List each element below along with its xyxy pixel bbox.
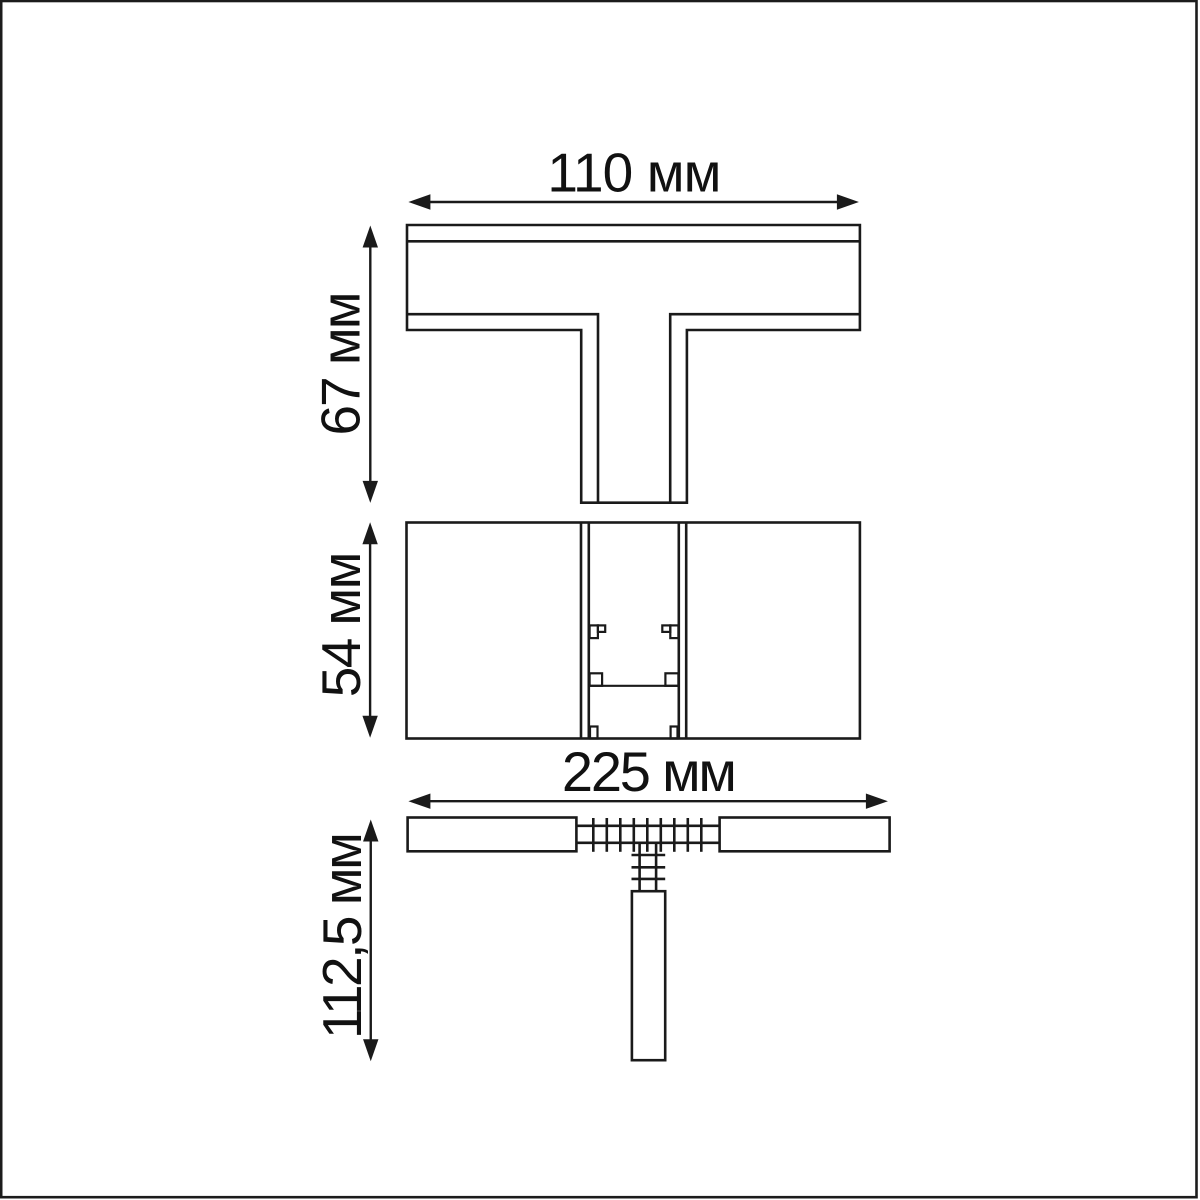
- svg-text:54 мм: 54 мм: [310, 553, 372, 697]
- svg-text:110 мм: 110 мм: [547, 142, 720, 204]
- svg-text:225 мм: 225 мм: [562, 740, 735, 803]
- svg-text:67 мм: 67 мм: [310, 293, 372, 435]
- svg-text:112,5 мм: 112,5 мм: [311, 835, 373, 1039]
